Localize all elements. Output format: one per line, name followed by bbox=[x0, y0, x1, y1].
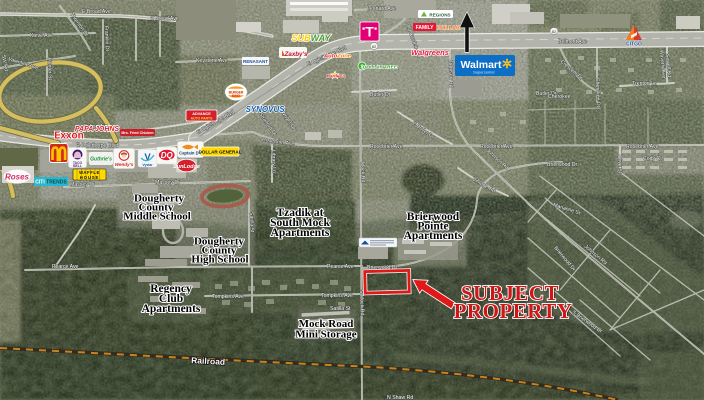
svg-text:Pearce Ave: Pearce Ave bbox=[327, 264, 354, 270]
svg-text:Johnson Rd: Johnson Rd bbox=[447, 60, 454, 88]
svg-text:Tompkins Ave: Tompkins Ave bbox=[212, 294, 244, 300]
svg-text:Middle School: Middle School bbox=[123, 211, 191, 223]
svg-text:Rosebrier Ave: Rosebrier Ave bbox=[480, 144, 513, 150]
svg-text:SunLodge: SunLodge bbox=[173, 164, 200, 170]
svg-text:DOLLAR TREE: DOLLAR TREE bbox=[363, 64, 398, 70]
svg-text:Massey Dr: Massey Dr bbox=[155, 180, 180, 186]
svg-text:HOUSE: HOUSE bbox=[80, 175, 99, 180]
svg-text:N Shaw Rd: N Shaw Rd bbox=[387, 395, 413, 400]
svg-text:Apartments: Apartments bbox=[404, 230, 463, 242]
svg-text:AutoZone: AutoZone bbox=[323, 54, 352, 60]
svg-text:Hardee's: Hardee's bbox=[327, 74, 346, 79]
svg-text:SUBWAY: SUBWAY bbox=[292, 33, 332, 43]
svg-text:Roses: Roses bbox=[5, 173, 30, 182]
svg-text:Butler Dr: Butler Dr bbox=[370, 92, 391, 98]
svg-text:Library Ln: Library Ln bbox=[270, 150, 277, 173]
svg-text:DOLLAR GENERAL: DOLLAR GENERAL bbox=[199, 149, 242, 154]
svg-text:Mock Rd: Mock Rd bbox=[359, 162, 366, 183]
svg-text:Mini Storage: Mini Storage bbox=[295, 329, 357, 341]
svg-text:KING: KING bbox=[232, 94, 240, 98]
svg-text:Rosebrier Ave: Rosebrier Ave bbox=[626, 144, 659, 150]
svg-text:Cherokee: Cherokee bbox=[548, 94, 571, 100]
svg-text:Olive St: Olive St bbox=[616, 155, 623, 174]
svg-text:PAPA JOHNS: PAPA JOHNS bbox=[75, 126, 120, 133]
svg-text:CITI TRENDS: CITI TRENDS bbox=[35, 180, 67, 186]
svg-text:Trenton Ln: Trenton Ln bbox=[632, 81, 657, 87]
svg-text:BELL: BELL bbox=[73, 164, 82, 168]
svg-text:Tompkins Ave: Tompkins Ave bbox=[321, 293, 353, 299]
svg-text:82: 82 bbox=[552, 29, 557, 34]
svg-text:E Broad Ave: E Broad Ave bbox=[150, 16, 179, 22]
svg-text:Satilla St: Satilla St bbox=[330, 306, 351, 312]
svg-text:Pearce Ave: Pearce Ave bbox=[52, 264, 79, 270]
svg-text:SYNOVUS: SYNOVUS bbox=[245, 105, 285, 114]
svg-text:AUTO PARTS: AUTO PARTS bbox=[191, 117, 213, 121]
svg-text:Vystar: Vystar bbox=[142, 163, 153, 167]
svg-text:DOLLAR: DOLLAR bbox=[437, 26, 460, 32]
svg-text:Keystone Ave: Keystone Ave bbox=[196, 58, 228, 64]
svg-text:RENASANT: RENASANT bbox=[243, 59, 268, 64]
svg-text:Apartments: Apartments bbox=[271, 227, 330, 239]
svg-text:Apartments: Apartments bbox=[142, 303, 201, 315]
svg-text:Guthrie's: Guthrie's bbox=[90, 157, 112, 163]
svg-text:Franklin Dr: Franklin Dr bbox=[103, 26, 110, 52]
svg-text:Hunter St: Hunter St bbox=[46, 58, 53, 81]
svg-text:Zaxby's: Zaxby's bbox=[284, 51, 308, 58]
svg-text:E Broad Ave: E Broad Ave bbox=[82, 9, 111, 15]
svg-text:Cherokee Dr: Cherokee Dr bbox=[594, 78, 601, 108]
svg-text:Railroad: Railroad bbox=[191, 355, 225, 367]
svg-text:PROPERTY: PROPERTY bbox=[454, 299, 573, 323]
svg-text:Massey Dr: Massey Dr bbox=[70, 182, 95, 188]
svg-text:Supercenter: Supercenter bbox=[473, 70, 495, 75]
svg-text:ADVANCE: ADVANCE bbox=[192, 112, 211, 116]
svg-text:V: V bbox=[144, 152, 151, 163]
svg-text:Satilla St: Satilla St bbox=[248, 212, 255, 233]
svg-text:Leonard Ave: Leonard Ave bbox=[367, 6, 396, 12]
svg-text:Brierwood Dr: Brierwood Dr bbox=[547, 162, 578, 168]
svg-text:Cody Ct: Cody Ct bbox=[643, 156, 662, 162]
svg-text:Rosebrier Ave: Rosebrier Ave bbox=[370, 144, 403, 150]
svg-text:DQ: DQ bbox=[161, 151, 174, 160]
svg-text:CITGO: CITGO bbox=[626, 42, 642, 48]
svg-text:T: T bbox=[365, 24, 374, 40]
svg-text:High School: High School bbox=[191, 254, 248, 266]
svg-text:Kieve Ave: Kieve Ave bbox=[30, 33, 53, 39]
svg-text:REGIONS: REGIONS bbox=[429, 12, 450, 17]
svg-text:82: 82 bbox=[372, 44, 377, 49]
svg-text:Mrs. Fried Chicken: Mrs. Fried Chicken bbox=[121, 131, 153, 135]
svg-text:Belmont Ave: Belmont Ave bbox=[558, 39, 587, 45]
svg-text:Walgreens: Walgreens bbox=[411, 48, 449, 57]
svg-text:Wendy's: Wendy's bbox=[115, 162, 134, 167]
svg-text:FAMILY: FAMILY bbox=[416, 25, 435, 31]
